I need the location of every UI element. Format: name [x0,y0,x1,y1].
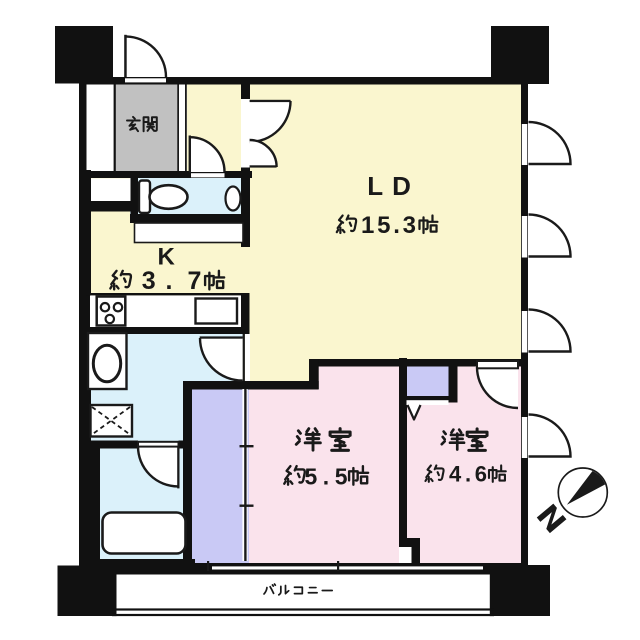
svg-text:7: 7 [188,267,202,295]
svg-text:5.5: 5.5 [305,464,348,490]
svg-text:4.6: 4.6 [449,462,487,487]
svg-text:.: . [166,267,173,295]
svg-text:LD: LD [367,171,420,201]
svg-text:15.3: 15.3 [361,212,416,239]
svg-text:3: 3 [142,267,156,295]
